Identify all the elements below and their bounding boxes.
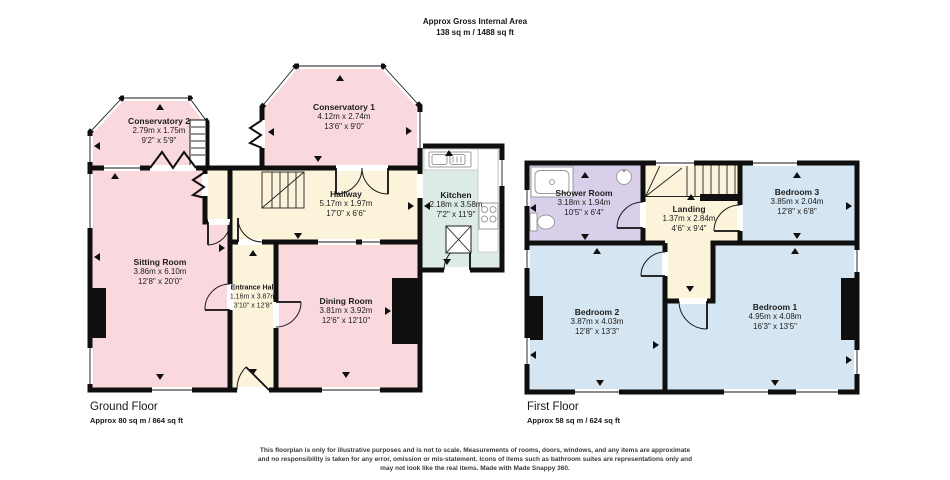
room-entrance-hall xyxy=(230,242,276,390)
room-name: Bedroom 1 xyxy=(749,302,802,312)
room-name: Kitchen xyxy=(430,190,483,200)
room-label-conservatory-2: Conservatory 2 2.79m x 1.75m 9'2" x 5'9" xyxy=(128,116,190,146)
disclaimer-line: may not look like the real items. Made w… xyxy=(175,464,775,473)
room-size-imperial: 12'8" x 13'3" xyxy=(571,327,624,337)
room-size-metric: 4.95m x 4.08m xyxy=(749,312,802,322)
room-name: Conservatory 1 xyxy=(313,102,375,112)
room-size-imperial: 12'8" x 20'0" xyxy=(134,277,187,287)
landing-corridor xyxy=(666,243,713,301)
room-size-imperial: 3'10" x 12'8" xyxy=(230,302,276,311)
room-size-imperial: 16'3" x 13'5" xyxy=(749,322,802,332)
appliance-icon xyxy=(446,226,471,253)
floorplan-page: Approx Gross Internal Area 138 sq m / 14… xyxy=(0,0,950,480)
room-label-bedroom-2: Bedroom 2 3.87m x 4.03m 12'8" x 13'3" xyxy=(571,307,624,337)
room-size-imperial: 13'6" x 9'0" xyxy=(313,122,375,132)
room-size-imperial: 17'0" x 6'6" xyxy=(320,209,373,219)
room-size-metric: 3.81m x 3.92m xyxy=(320,306,373,316)
floor-area: Approx 58 sq m / 624 sq ft xyxy=(527,416,620,425)
room-label-shower-room: Shower Room 3.18m x 1.94m 10'5" x 6'4" xyxy=(555,188,612,218)
disclaimer-text: This floorplan is only for illustrative … xyxy=(175,446,775,473)
room-name: Shower Room xyxy=(555,188,612,198)
room-name: Entrance Hall xyxy=(230,284,276,293)
room-size-metric: 3.87m x 4.03m xyxy=(571,317,624,327)
room-size-metric: 4.12m x 2.74m xyxy=(313,112,375,122)
room-name: Bedroom 2 xyxy=(571,307,624,317)
disclaimer-line: This floorplan is only for illustrative … xyxy=(175,446,775,455)
room-label-conservatory-1: Conservatory 1 4.12m x 2.74m 13'6" x 9'0… xyxy=(313,102,375,132)
room-name: Landing xyxy=(663,204,716,214)
room-label-sitting-room: Sitting Room 3.86m x 6.10m 12'8" x 20'0" xyxy=(134,257,187,287)
room-size-imperial: 7'2" x 11'9" xyxy=(430,210,483,220)
room-label-entrance-hall: Entrance Hall 1.16m x 3.87m 3'10" x 12'8… xyxy=(230,284,276,311)
chimney-breast xyxy=(527,296,543,340)
kitchen-opening xyxy=(417,174,423,198)
ground-floor-plan xyxy=(90,66,502,390)
room-size-metric: 3.18m x 1.94m xyxy=(555,198,612,208)
room-size-imperial: 12'8" x 6'8" xyxy=(771,207,824,217)
room-name: Bedroom 3 xyxy=(771,187,824,197)
room-name: Dining Room xyxy=(320,296,373,306)
room-label-bedroom-3: Bedroom 3 3.85m x 2.04m 12'8" x 6'8" xyxy=(771,187,824,217)
room-size-metric: 3.85m x 2.04m xyxy=(771,197,824,207)
room-size-metric: 3.86m x 6.10m xyxy=(134,267,187,277)
room-size-imperial: 9'2" x 5'9" xyxy=(128,136,190,146)
chimney-breast xyxy=(392,278,420,344)
floor-area: Approx 80 sq m / 864 sq ft xyxy=(90,416,183,425)
room-size-metric: 2.18m x 3.58m xyxy=(430,200,483,210)
room-size-imperial: 10'5" x 6'4" xyxy=(555,208,612,218)
room-size-metric: 5.17m x 1.97m xyxy=(320,199,373,209)
disclaimer-line: and no responsibility is taken for any e… xyxy=(175,455,775,464)
floor-name: First Floor xyxy=(527,401,620,413)
floor-name: Ground Floor xyxy=(90,401,183,413)
room-size-imperial: 4'6" x 9'4" xyxy=(663,224,716,234)
room-label-dining-room: Dining Room 3.81m x 3.92m 12'6" x 12'10" xyxy=(320,296,373,326)
room-name: Hallway xyxy=(320,189,373,199)
chimney-breast xyxy=(841,278,857,340)
basin-icon xyxy=(617,169,632,185)
room-size-metric: 1.16m x 3.87m xyxy=(230,293,276,302)
chimney-breast xyxy=(90,288,106,338)
room-name: Conservatory 2 xyxy=(128,116,190,126)
room-size-metric: 1.37m x 2.84m xyxy=(663,214,716,224)
room-size-imperial: 12'6" x 12'10" xyxy=(320,316,373,326)
room-label-hallway: Hallway 5.17m x 1.97m 17'0" x 6'6" xyxy=(320,189,373,219)
room-label-kitchen: Kitchen 2.18m x 3.58m 7'2" x 11'9" xyxy=(430,190,483,220)
room-size-metric: 2.79m x 1.75m xyxy=(128,126,190,136)
first-floor-title: First Floor Approx 58 sq m / 624 sq ft xyxy=(527,401,620,425)
room-name: Sitting Room xyxy=(134,257,187,267)
ground-floor-title: Ground Floor Approx 80 sq m / 864 sq ft xyxy=(90,401,183,425)
toilet-icon xyxy=(530,213,555,231)
room-label-bedroom-1: Bedroom 1 4.95m x 4.08m 16'3" x 13'5" xyxy=(749,302,802,332)
room-label-landing: Landing 1.37m x 2.84m 4'6" x 9'4" xyxy=(663,204,716,234)
